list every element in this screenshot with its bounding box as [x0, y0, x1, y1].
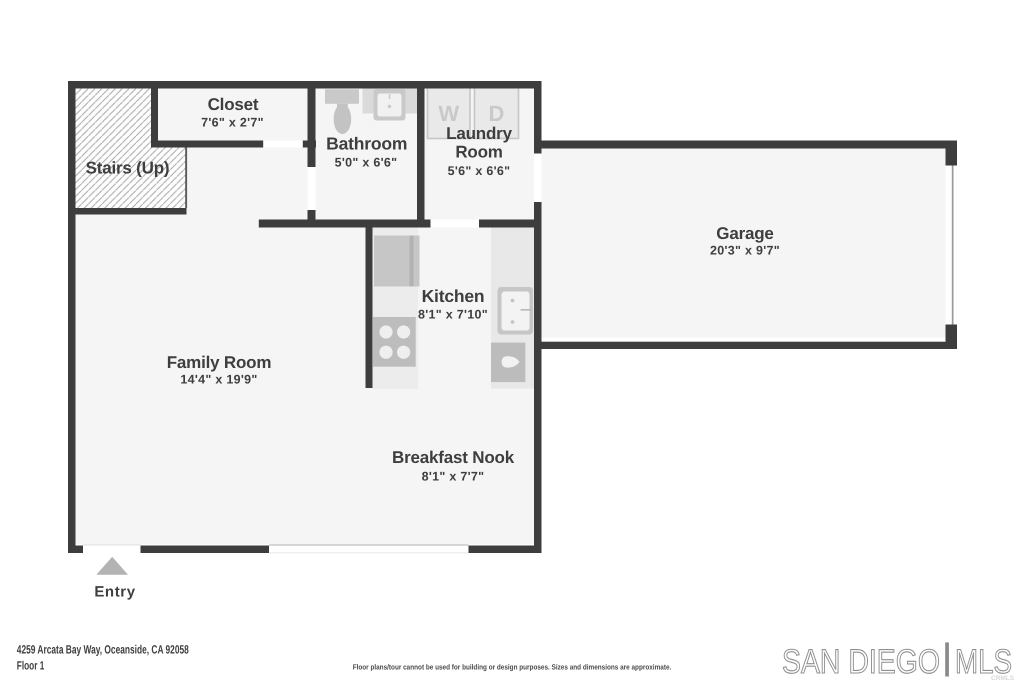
svg-text:Laundry: Laundry — [446, 124, 512, 143]
svg-text:CRMLS: CRMLS — [991, 675, 1015, 682]
svg-text:5'0" x 6'6": 5'0" x 6'6" — [335, 155, 398, 169]
svg-text:Floor plans/tour cannot be use: Floor plans/tour cannot be used for buil… — [353, 663, 672, 672]
svg-text:7'6" x 2'7": 7'6" x 2'7" — [201, 115, 264, 129]
svg-text:Garage: Garage — [716, 224, 773, 243]
svg-text:8'1" x 7'10": 8'1" x 7'10" — [418, 308, 488, 322]
svg-text:Kitchen: Kitchen — [422, 286, 485, 306]
svg-text:W: W — [438, 101, 459, 126]
svg-text:Entry: Entry — [94, 584, 135, 601]
svg-text:Room: Room — [455, 143, 502, 162]
svg-text:Bathroom: Bathroom — [326, 134, 407, 154]
svg-text:SAN DIEGO: SAN DIEGO — [782, 643, 940, 681]
svg-text:Family Room: Family Room — [167, 353, 272, 372]
svg-text:Closet: Closet — [208, 95, 259, 114]
svg-text:5'6" x 6'6": 5'6" x 6'6" — [448, 164, 511, 178]
svg-text:20'3" x 9'7": 20'3" x 9'7" — [710, 244, 780, 258]
svg-text:4259 Arcata Bay Way, Oceanside: 4259 Arcata Bay Way, Oceanside, CA 92058 — [17, 643, 189, 657]
svg-text:Breakfast Nook: Breakfast Nook — [392, 448, 515, 467]
svg-text:D: D — [489, 101, 505, 126]
svg-text:Stairs (Up): Stairs (Up) — [86, 159, 170, 178]
svg-text:Floor 1: Floor 1 — [17, 659, 45, 673]
svg-text:8'1" x 7'7": 8'1" x 7'7" — [422, 470, 485, 484]
svg-text:14'4" x 19'9": 14'4" x 19'9" — [180, 373, 257, 387]
